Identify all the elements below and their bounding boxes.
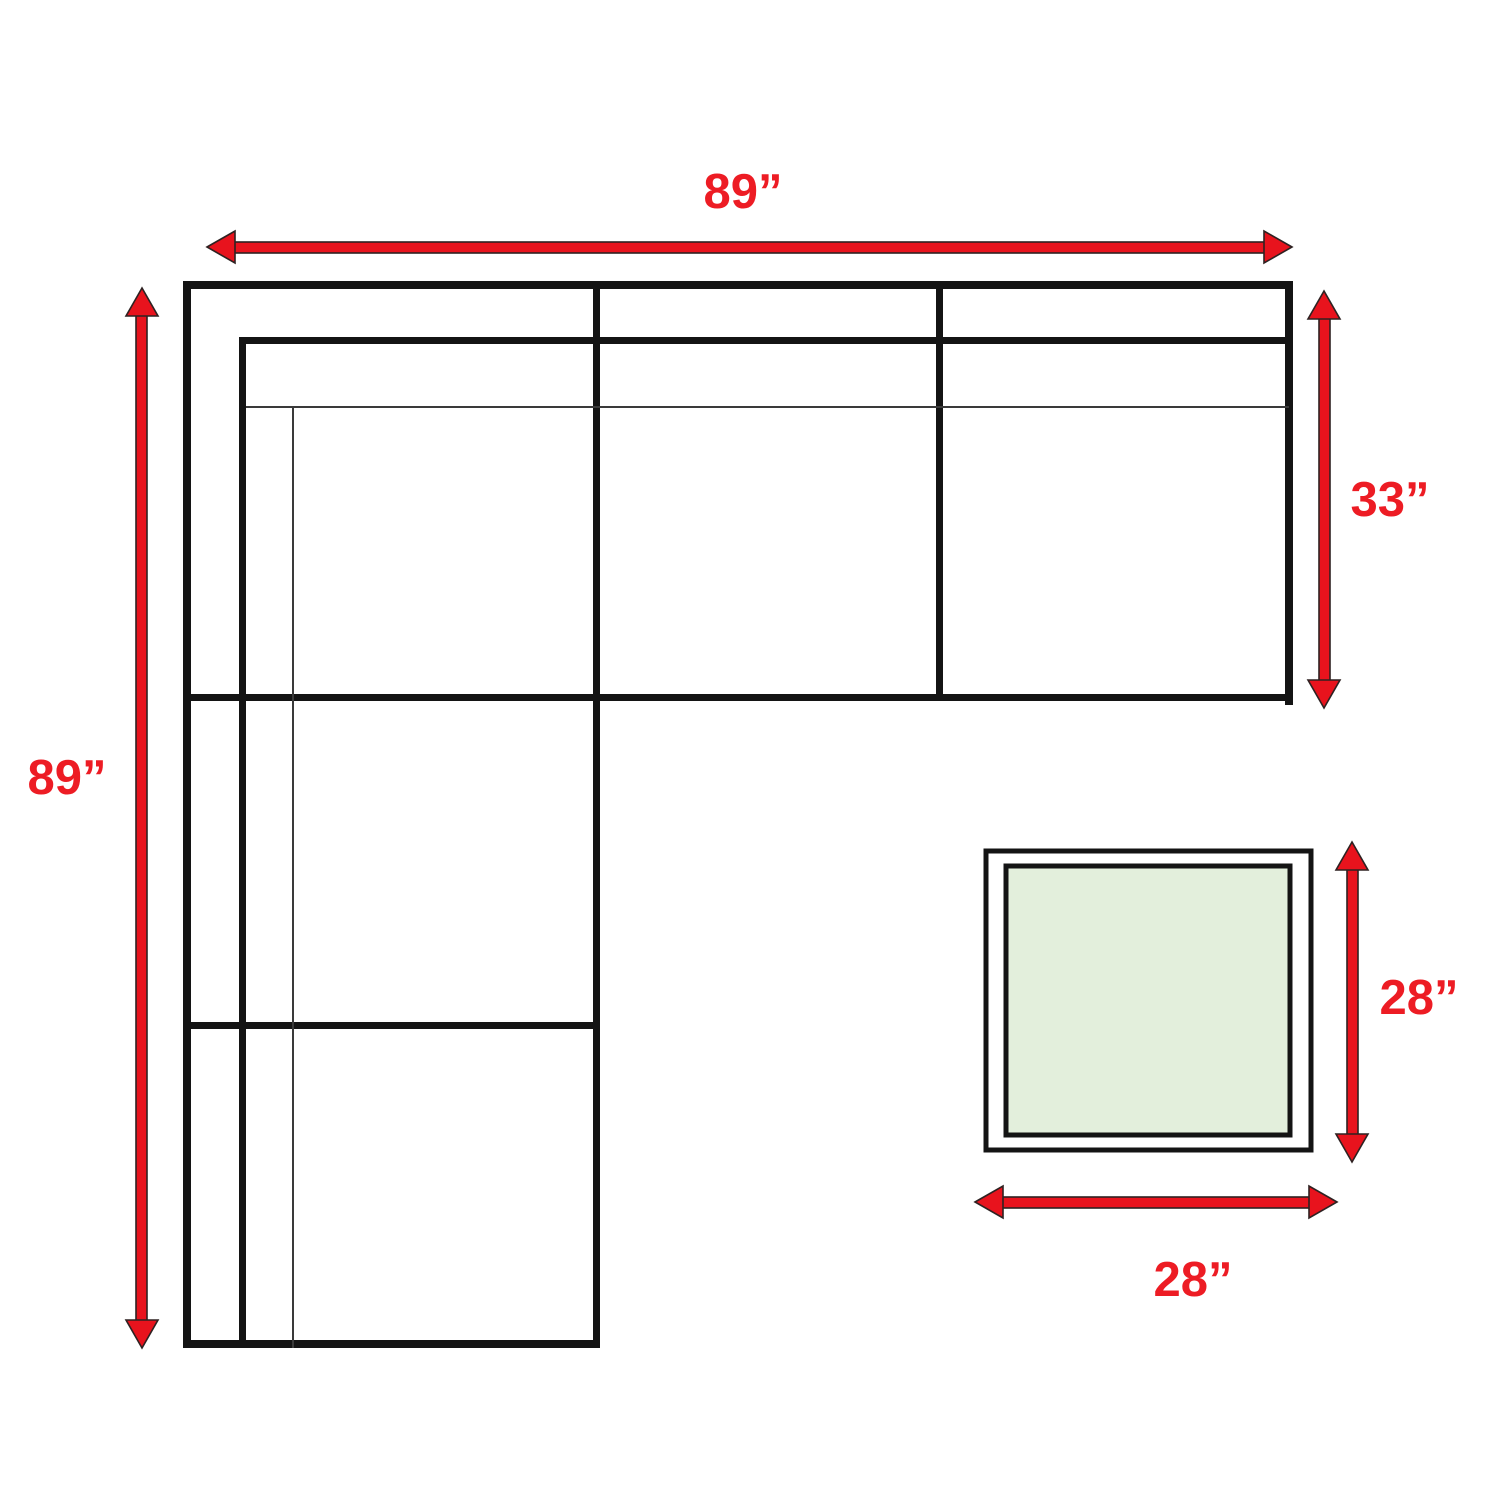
table-width-arrow — [975, 1186, 1337, 1218]
sofa-backrest-line-vertical — [239, 337, 246, 1348]
arrow-head-top — [126, 288, 158, 316]
arrow-head-left — [207, 231, 235, 263]
arrow-bar — [1319, 317, 1330, 682]
sofa-width-arrow — [207, 231, 1292, 263]
sofa-outer-right-edge — [1285, 281, 1293, 705]
sofa-depth-arrow — [1308, 291, 1340, 708]
arrow-head-right — [1309, 1186, 1337, 1218]
sofa-section-bottom-line — [183, 694, 1293, 701]
sectional-sofa-dimension-diagram: 89” 89” 33” 28” 28” — [0, 0, 1500, 1500]
table-width-label: 28” — [1153, 1253, 1232, 1307]
dimension-arrows — [126, 231, 1368, 1348]
arrow-bar — [1001, 1197, 1311, 1208]
side-table — [986, 851, 1311, 1150]
sofa-length-arrow — [126, 288, 158, 1348]
arrow-head-top — [1308, 291, 1340, 319]
sofa-cushion-thin-line-vertical — [292, 406, 294, 1348]
sofa-length-label: 89” — [27, 751, 106, 805]
sofa-width-label: 89” — [703, 165, 782, 219]
table-height-arrow — [1336, 842, 1368, 1162]
arrow-head-bottom — [1308, 680, 1340, 708]
arrow-head-top — [1336, 842, 1368, 870]
diagram-canvas: 89” 89” 33” 28” 28” — [0, 0, 1500, 1500]
sofa-backrest-line-horizontal — [239, 337, 1293, 344]
arrow-head-right — [1264, 231, 1292, 263]
arrow-bar — [233, 242, 1266, 253]
sofa-outer-left-edge — [183, 281, 191, 1348]
sofa-outline — [183, 281, 1293, 1348]
sofa-depth-label: 33” — [1350, 473, 1429, 527]
sofa-chaise-right-edge-line — [593, 281, 600, 1348]
arrow-head-bottom — [126, 1320, 158, 1348]
arrow-bar — [1347, 868, 1358, 1136]
table-height-label: 28” — [1379, 971, 1458, 1025]
arrow-bar — [136, 314, 147, 1322]
arrow-head-bottom — [1336, 1134, 1368, 1162]
arrow-head-left — [975, 1186, 1003, 1218]
sofa-outer-top-edge — [183, 281, 1293, 289]
table-top-surface — [1006, 866, 1290, 1135]
sofa-cushion-thin-line-horizontal — [246, 406, 1289, 408]
